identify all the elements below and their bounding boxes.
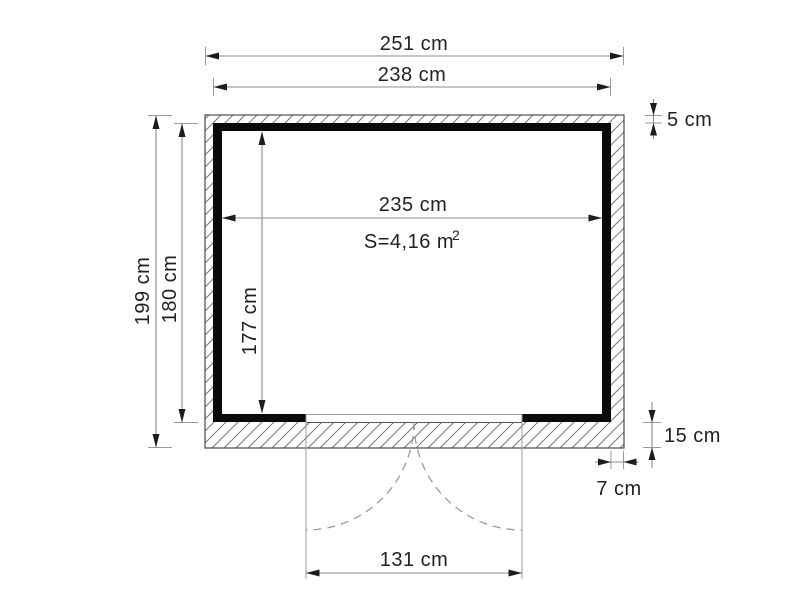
wall-top xyxy=(213,123,611,131)
wall-outer-width-label: 238 cm xyxy=(378,64,447,86)
wall-right xyxy=(602,123,611,422)
overall-width-label: 251 cm xyxy=(380,33,449,55)
area-annotation: S=4,16 m 2 xyxy=(364,227,460,253)
area-label-superscript: 2 xyxy=(452,227,460,243)
overall-depth-label: 199 cm xyxy=(132,257,154,326)
drawing-canvas: 251 cm 238 cm 235 cm S=4,16 m 2 199 cm 1 xyxy=(0,0,800,600)
top-edge-offset-label: 5 cm xyxy=(667,109,712,131)
dim-wall-outer-depth: 180 cm xyxy=(159,124,198,423)
right-edge-offset-label: 7 cm xyxy=(596,478,641,500)
interior-floor xyxy=(213,123,611,422)
wall-bottom-left xyxy=(213,414,306,422)
door-width-label: 131 cm xyxy=(380,549,449,571)
wall-left xyxy=(213,123,222,422)
interior-width-label: 235 cm xyxy=(379,194,448,216)
dim-bottom-edge-offset: 15 cm xyxy=(643,402,721,468)
dim-top-edge-offset: 5 cm xyxy=(645,99,712,139)
bottom-edge-offset-label: 15 cm xyxy=(664,425,721,447)
dim-right-edge-offset: 7 cm xyxy=(595,451,642,500)
wall-bottom-right xyxy=(522,414,611,422)
dim-overall-width: 251 cm xyxy=(206,33,624,65)
interior-depth-label: 177 cm xyxy=(239,287,261,356)
floor-plan-drawing: 251 cm 238 cm 235 cm S=4,16 m 2 199 cm 1 xyxy=(0,0,800,600)
wall-outer-depth-label: 180 cm xyxy=(159,255,181,324)
dim-wall-outer-width: 238 cm xyxy=(214,64,611,96)
area-label: S=4,16 m xyxy=(364,231,454,253)
